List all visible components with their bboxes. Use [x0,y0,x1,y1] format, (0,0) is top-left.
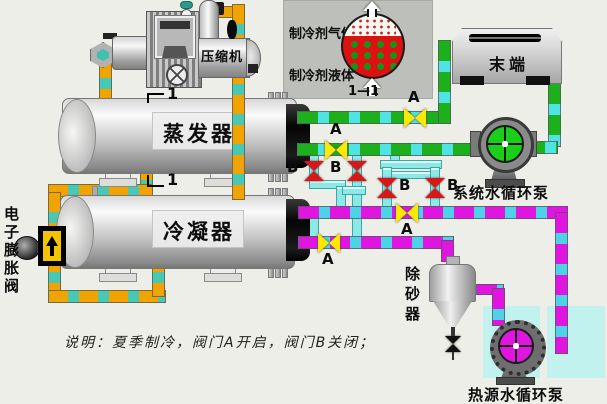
pipe-heat-source-right-drop [555,212,568,354]
sand-remover-label: 除砂器 [402,266,423,326]
pipe-terminal-inlet-riser [438,40,451,124]
compressor-junction-box [248,64,258,73]
sand-remover-drain-tail [452,352,454,360]
pipe-heat-pump-inlet [492,288,505,326]
refrigerant-liquid-label: 制冷剂液体 [289,65,354,84]
system-pump-label: 系统水循环泵 [453,182,549,203]
liquid-bubbles [348,39,398,72]
pipe-liquid-lower-horizontal [48,290,166,303]
valve-b-label-4: B [447,176,458,194]
valve-a-label-2: A [330,120,342,138]
valve-b-crossover-4 [424,178,446,198]
diagram-note: 说明：夏季制冷，阀门A开启，阀门B关闭； [64,332,375,352]
compressor-impeller [166,64,188,86]
condenser-legbase-left [99,273,137,282]
valve-b-label-3: B [399,176,410,194]
gas-speckles [350,18,396,35]
section-mark-bottom-label: 1 [167,170,178,189]
section-view-panel: 制冷剂气体 制冷剂液体 1—1 [283,0,433,99]
valve-a-chilled-return [325,140,347,160]
valve-a-label-4: A [322,250,334,268]
sand-remover-drain-valve [445,336,461,352]
condenser-label: 冷凝器 [163,216,235,246]
valve-b-crossover-2 [346,161,368,181]
evaporator-dome [58,99,96,173]
crossover-b2-jog [342,186,366,195]
gas-outlet-stem [367,9,377,17]
pipe-heat-source-upper [298,206,568,219]
condenser-legbase-right [204,273,242,282]
expansion-valve-label: 电子膨胀阀 [1,206,22,296]
valve-b-crossover-1 [303,161,325,181]
system-pump-impeller [486,125,524,163]
expansion-valve-arrow-stem [50,245,54,256]
terminal-label: 末端 [489,51,529,75]
valve-b-label-2: B [330,158,341,176]
compressor-top-cylinder [199,0,219,40]
valve-a-label-3: A [401,220,413,238]
compressor-box-trapezoid [162,46,188,58]
refrigeration-schematic: 制冷剂气体 制冷剂液体 1—1 蒸发器 [0,0,607,404]
terminal-grille [469,34,541,42]
section-mark-top-h [147,93,164,95]
sand-remover-body [429,264,476,302]
evaporator-label: 蒸发器 [163,118,235,148]
section-mark-bottom-h [147,185,164,187]
valve-a-chilled-supply [404,108,426,128]
section-mark-top-label: 1 [167,84,178,103]
valve-a-label-1: A [408,88,420,106]
terminal-foot-left [460,76,484,85]
compressor-label: 压缩机 [201,46,243,65]
terminal-foot-right [526,76,550,85]
heat-pump-impeller [498,328,534,364]
section-caption: 1—1 [348,84,379,99]
sand-remover-drain-stem [451,327,455,336]
sand-remover-cone [433,301,472,328]
heat-pump-label: 热源水循环泵 [468,384,564,404]
compressor-box-slot [160,21,190,29]
valve-b-crossover-3 [376,178,398,198]
compressor-leaf-fitting [227,20,237,39]
evaporator-legbase-left [99,178,137,187]
valve-b-label-1: B [287,158,298,176]
compressor-teal-cap [180,1,193,9]
separator-vessel [341,13,405,79]
